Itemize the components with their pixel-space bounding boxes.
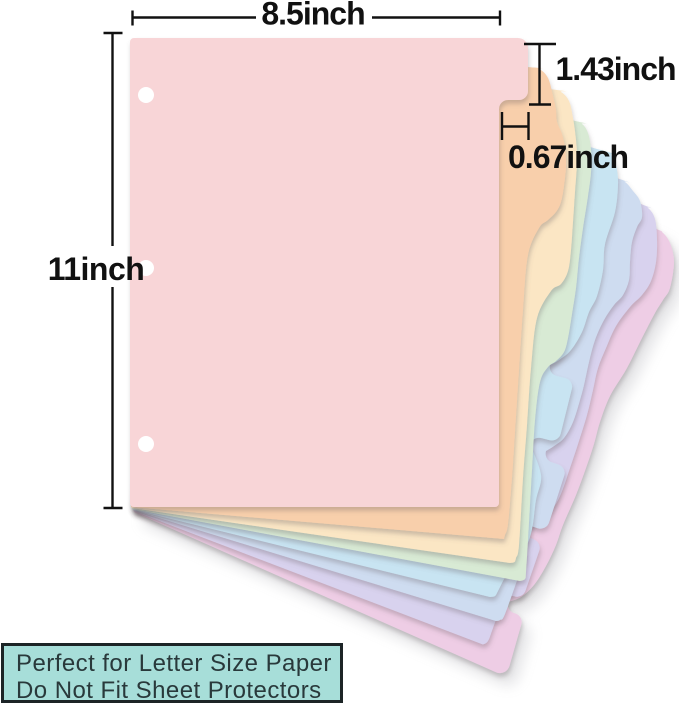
svg-text:8.5inch: 8.5inch [261,0,364,32]
svg-text:0.67inch: 0.67inch [508,139,628,175]
svg-text:11inch: 11inch [48,251,145,287]
svg-text:1.43inch: 1.43inch [556,51,676,87]
svg-text:Do Not Fit Sheet Protectors: Do Not Fit Sheet Protectors [16,677,322,704]
svg-text:Perfect for Letter Size Paper: Perfect for Letter Size Paper [16,650,332,677]
